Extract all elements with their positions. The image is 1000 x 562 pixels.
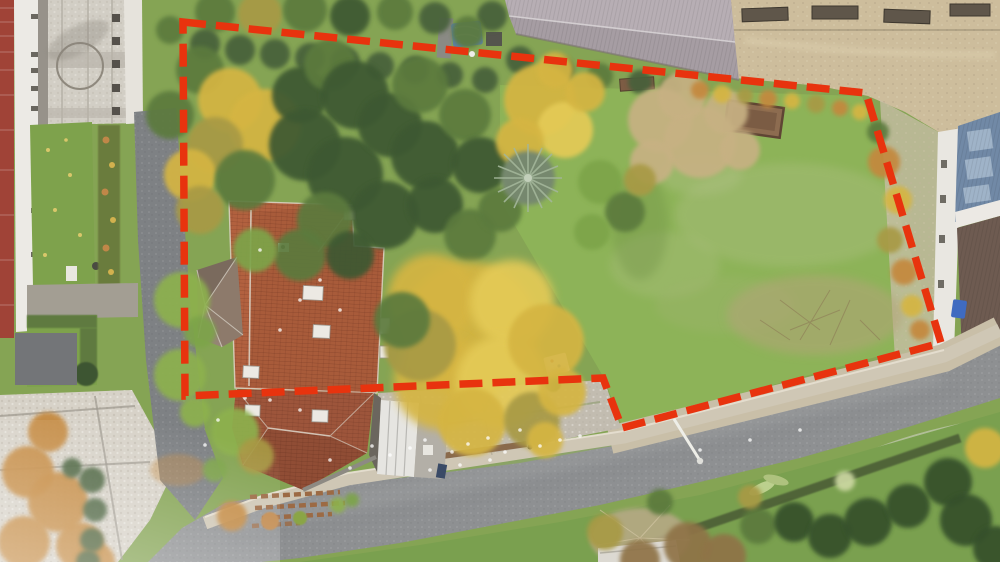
petal-speck <box>578 434 582 438</box>
tree-canopy-blob <box>647 489 673 515</box>
tree-canopy-blob <box>374 292 430 348</box>
petal-speck <box>748 438 752 442</box>
petal-speck <box>258 248 262 252</box>
petal-speck <box>538 444 542 448</box>
tree-canopy-blob <box>835 471 855 491</box>
tree-canopy-blob <box>452 16 484 48</box>
bush <box>74 362 98 386</box>
tree-canopy-blob <box>587 514 623 550</box>
lens-haze <box>0 420 280 562</box>
tree-canopy-blob <box>326 231 374 279</box>
petal-speck <box>458 463 462 467</box>
white-bucket <box>469 51 475 57</box>
small-parking <box>15 333 77 385</box>
petal-speck <box>388 453 392 457</box>
petal-speck <box>370 444 374 448</box>
petal-speck <box>486 436 490 440</box>
lawn-marker <box>66 266 77 281</box>
tree-canopy-blob <box>419 2 451 34</box>
tree-canopy-blob <box>439 89 491 141</box>
tree-canopy-blob <box>225 35 255 65</box>
hedge-row <box>27 315 97 328</box>
petal-speck <box>450 450 454 454</box>
tree-canopy-blob <box>852 104 868 120</box>
cross-walkway <box>27 283 138 319</box>
petal-speck <box>268 398 272 402</box>
autumn-hedge-strip <box>98 125 120 285</box>
petal-speck <box>518 428 522 432</box>
petal-speck <box>558 438 562 442</box>
petal-speck <box>278 328 282 332</box>
white-path <box>124 0 143 124</box>
tree-canopy-blob <box>184 316 216 348</box>
petal-speck <box>338 308 342 312</box>
tree-canopy-blob <box>527 422 563 458</box>
pad-box <box>423 445 433 455</box>
green-bush <box>293 511 307 525</box>
tree-canopy-blob <box>784 93 800 109</box>
petal-speck <box>298 298 302 302</box>
petal-speck <box>318 278 322 282</box>
petal-speck <box>503 450 507 454</box>
petal-speck <box>798 428 802 432</box>
petal-speck <box>348 466 352 470</box>
petal-speck <box>408 446 412 450</box>
tree-canopy-blob <box>345 493 359 507</box>
tree-canopy-blob <box>233 228 277 272</box>
petal-speck <box>328 458 332 462</box>
tree-canopy-blob <box>901 295 923 317</box>
tree-canopy-blob <box>910 320 930 340</box>
brick-building-roof <box>0 0 14 338</box>
tree-canopy-blob <box>759 90 777 108</box>
tree-canopy-blob <box>807 95 825 113</box>
tree-canopy-blob <box>886 484 930 528</box>
tree-canopy-blob <box>624 164 656 196</box>
tree-canopy-blob <box>605 192 645 232</box>
tree-canopy-blob <box>740 508 776 544</box>
tree-canopy-blob <box>691 81 709 99</box>
tree-canopy-blob <box>215 150 275 210</box>
tree-canopy-blob <box>508 304 584 380</box>
compost-bin <box>486 32 502 46</box>
petal-speck <box>423 438 427 442</box>
tree-canopy-blob <box>260 39 290 69</box>
tree-canopy-blob <box>713 85 731 103</box>
petal-speck <box>466 442 470 446</box>
plaza-edge-strip <box>38 0 48 125</box>
tree-canopy-blob <box>738 485 762 509</box>
tree-canopy-blob <box>844 498 892 546</box>
tree-canopy-blob <box>720 130 760 170</box>
spruce-top <box>524 174 532 182</box>
petal-speck <box>298 408 302 412</box>
petal-speck <box>698 448 702 452</box>
lamp-head <box>697 458 703 464</box>
tree-canopy-blob <box>392 57 448 113</box>
tree-canopy-blob <box>737 88 753 104</box>
tree-canopy-blob <box>832 100 848 116</box>
blue-wheelie-bin <box>951 299 967 319</box>
tree-canopy-blob <box>574 214 610 250</box>
tree-canopy-blob <box>330 497 346 513</box>
petal-speck <box>488 458 492 462</box>
petal-speck <box>428 468 432 472</box>
tree-canopy-blob <box>877 227 903 253</box>
tree-canopy-blob <box>538 368 586 416</box>
dry-shrub-patch <box>727 275 903 355</box>
aerial-photo <box>0 0 1000 562</box>
spruce-tree <box>494 144 562 212</box>
tree-canopy-blob <box>438 388 506 456</box>
tree-canopy-blob <box>472 67 498 93</box>
tree-canopy-blob <box>274 229 326 281</box>
lawn-strip-1 <box>30 122 95 287</box>
